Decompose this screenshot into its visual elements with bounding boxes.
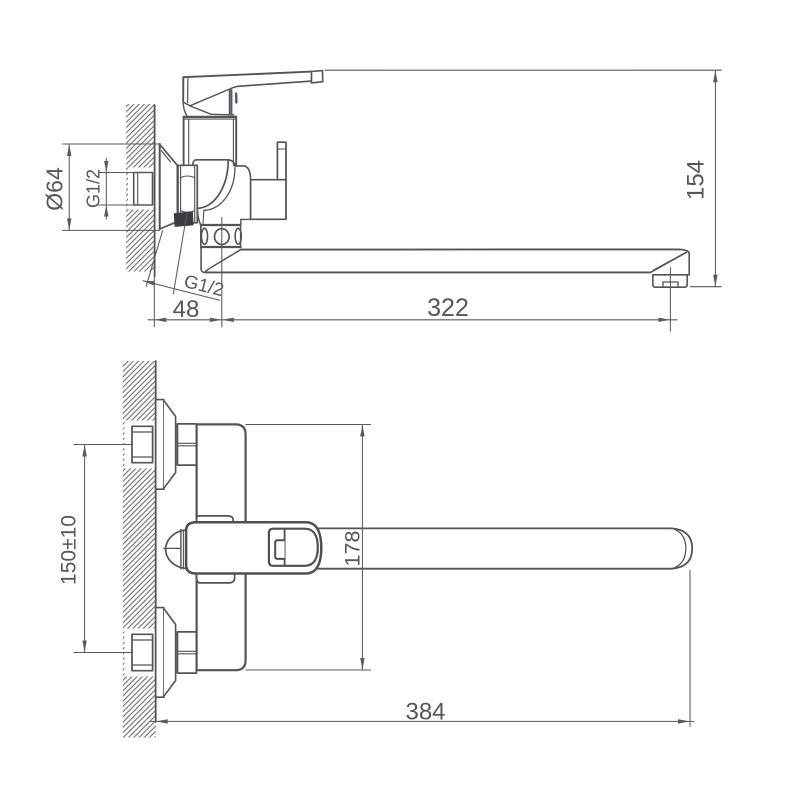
svg-text:48: 48 — [173, 296, 200, 323]
svg-text:154: 154 — [683, 160, 710, 200]
svg-text:G1/2: G1/2 — [83, 169, 103, 208]
svg-text:150±10: 150±10 — [58, 515, 81, 585]
svg-text:178: 178 — [341, 531, 365, 567]
svg-text:384: 384 — [405, 699, 445, 726]
svg-text:322: 322 — [427, 294, 469, 322]
svg-text:Ø64: Ø64 — [42, 167, 68, 211]
